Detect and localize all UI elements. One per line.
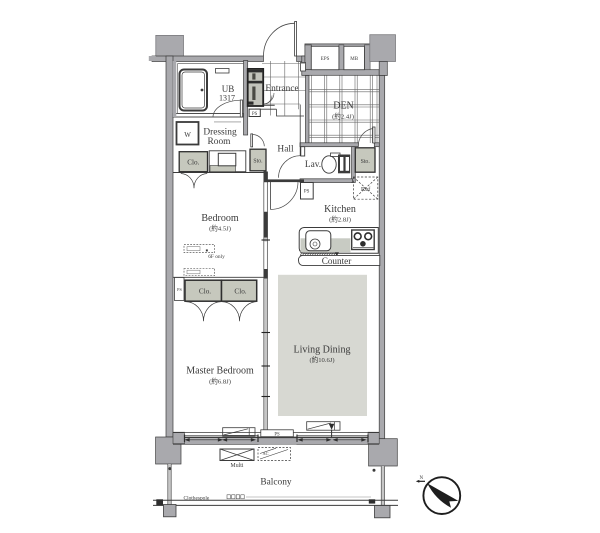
svg-text:EPS: EPS [321, 57, 330, 62]
svg-text:Living Dining: Living Dining [294, 345, 351, 356]
svg-text:Clo.: Clo. [234, 288, 246, 296]
svg-text:Hall: Hall [277, 145, 294, 155]
svg-text:AC: AC [262, 451, 268, 456]
svg-text:PS: PS [177, 287, 182, 292]
svg-text:Sto.: Sto. [253, 158, 263, 164]
svg-text:Room: Room [208, 137, 232, 147]
svg-text:(約6.8J): (約6.8J) [209, 377, 231, 386]
svg-text:Ref: Ref [361, 186, 371, 193]
svg-text:Clo.: Clo. [199, 288, 211, 296]
svg-text:(約10.6J): (約10.6J) [309, 355, 334, 364]
svg-text:Master Bedroom: Master Bedroom [186, 366, 254, 377]
svg-text:(約2.8J): (約2.8J) [329, 215, 351, 224]
svg-text:1317: 1317 [219, 94, 235, 103]
svg-text:Lav.: Lav. [305, 160, 321, 170]
svg-text:W: W [184, 131, 191, 139]
svg-text:Clo.: Clo. [187, 158, 199, 166]
svg-text:(約2.4J): (約2.4J) [332, 112, 354, 121]
svg-text:(約4.5J): (約4.5J) [209, 224, 231, 233]
svg-text:MB: MB [350, 57, 358, 62]
svg-text:6F only: 6F only [208, 254, 225, 260]
svg-text:DEN: DEN [333, 101, 354, 112]
svg-text:Sto.: Sto. [361, 159, 371, 165]
svg-text:Counter: Counter [322, 256, 352, 266]
svg-text:Kitchen: Kitchen [324, 204, 356, 215]
svg-text:PS: PS [304, 190, 310, 195]
svg-text:N: N [420, 476, 424, 481]
svg-text:UB: UB [222, 84, 235, 94]
svg-text:Clothespole: Clothespole [184, 496, 210, 502]
svg-text:Bedroom: Bedroom [201, 213, 238, 224]
svg-text:Multi: Multi [231, 463, 244, 469]
svg-text:Entrance: Entrance [265, 84, 298, 94]
svg-text:Balcony: Balcony [260, 478, 292, 488]
svg-text:PS: PS [252, 112, 258, 117]
